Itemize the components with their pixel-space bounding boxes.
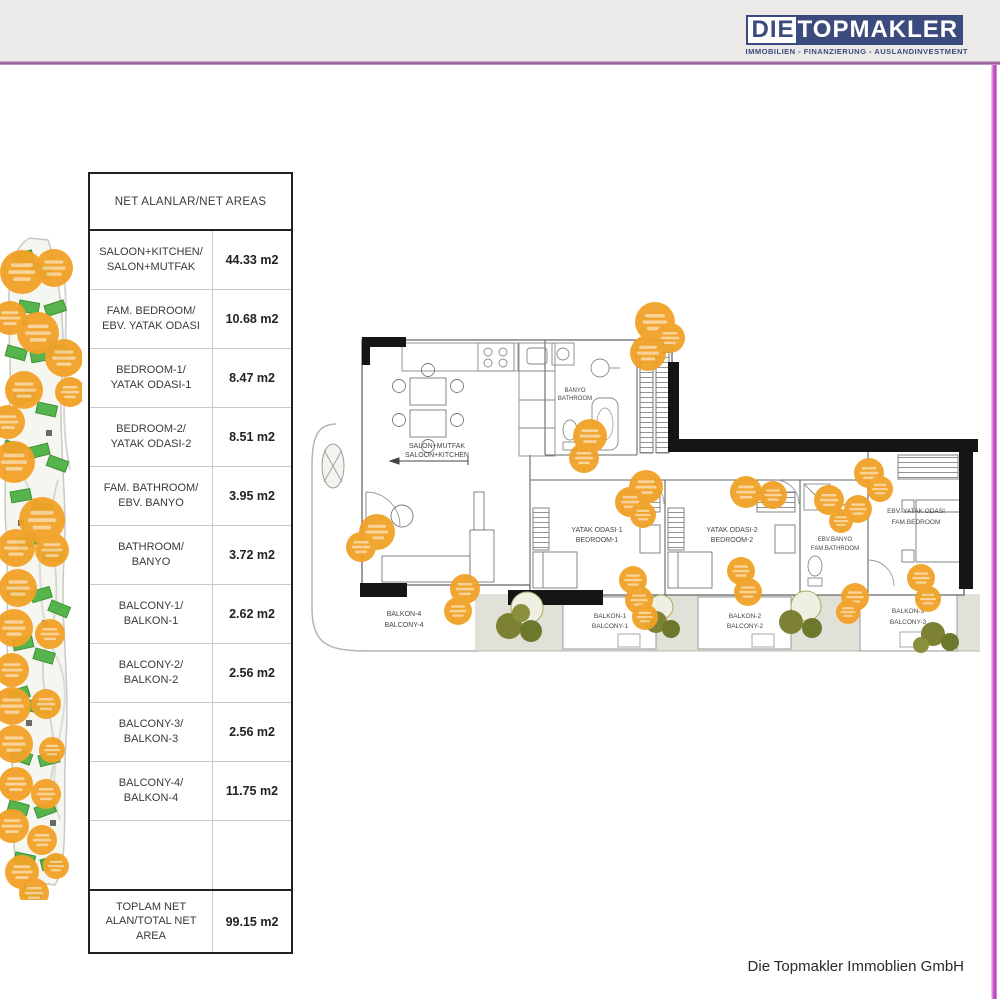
area-name-tr: BANYO bbox=[132, 555, 171, 570]
table-row: FAM. BEDROOM/ EBV. YATAK ODASI 10.68 m2 bbox=[90, 290, 291, 349]
area-name-tr: EBV. YATAK ODASI bbox=[102, 319, 200, 334]
area-name-tr: BALKON-1 bbox=[124, 614, 178, 629]
area-value: 8.47 m2 bbox=[213, 349, 291, 407]
room-label-balcony4-tr: BALKON-4 bbox=[387, 611, 422, 618]
area-name-en: BATHROOM/ bbox=[118, 540, 184, 555]
area-name-tr: BALKON-2 bbox=[124, 673, 178, 688]
brand-logo: DIE TOPMAKLER IMMOBILIEN - FINANZIERUNG … bbox=[746, 15, 968, 56]
area-value: 3.72 m2 bbox=[213, 526, 291, 584]
room-label-bedroom1-en: BEDROOM-1 bbox=[576, 537, 619, 544]
table-row: BEDROOM-1/ YATAK ODASI-1 8.47 m2 bbox=[90, 349, 291, 408]
area-name-tr: BALKON-4 bbox=[124, 791, 178, 806]
table-row: BALCONY-1/ BALKON-1 2.62 m2 bbox=[90, 585, 291, 644]
room-label-bedroom2-tr: YATAK ODASI-2 bbox=[706, 527, 757, 534]
table-row: SALOON+KITCHEN/ SALON+MUTFAK 44.33 m2 bbox=[90, 231, 291, 290]
area-name bbox=[90, 821, 213, 889]
table-row: BALCONY-2/ BALKON-2 2.56 m2 bbox=[90, 644, 291, 703]
table-row: FAM. BATHROOM/ EBV. BANYO 3.95 m2 bbox=[90, 467, 291, 526]
room-label-balcony1-tr: BALKON-1 bbox=[594, 613, 627, 620]
room-label-balcony3-tr: BALKON-3 bbox=[892, 608, 925, 615]
area-name: BATHROOM/ BANYO bbox=[90, 526, 213, 584]
site-plan-thumbnail bbox=[0, 228, 82, 900]
logo-topmakler: TOPMAKLER bbox=[796, 15, 964, 45]
logo-die: DIE bbox=[746, 15, 796, 45]
area-name-tr: SALON+MUTFAK bbox=[107, 260, 195, 275]
table-row: BEDROOM-2/ YATAK ODASI-2 8.51 m2 bbox=[90, 408, 291, 467]
total-value: 99.15 m2 bbox=[213, 891, 291, 952]
area-value: 3.95 m2 bbox=[213, 467, 291, 525]
total-label-line3: AREA bbox=[136, 929, 166, 944]
header-divider-line bbox=[0, 61, 1000, 65]
area-value: 2.56 m2 bbox=[213, 644, 291, 702]
room-label-balcony3-en: BALCONY-3 bbox=[890, 619, 927, 626]
area-name-tr: EBV. BANYO bbox=[118, 496, 184, 511]
room-label-balcony1-en: BALCONY-1 bbox=[592, 623, 629, 630]
area-name: SALOON+KITCHEN/ SALON+MUTFAK bbox=[90, 231, 213, 289]
table-row: BALCONY-3/ BALKON-3 2.56 m2 bbox=[90, 703, 291, 762]
page-right-border bbox=[991, 65, 997, 999]
area-value: 2.56 m2 bbox=[213, 703, 291, 761]
floor-plan: SALON+MUTFAK SALOON+KITCHEN BANYO BATHRO… bbox=[300, 300, 990, 660]
area-name-en: BALCONY-2/ bbox=[119, 658, 183, 673]
area-value: 2.62 m2 bbox=[213, 585, 291, 643]
total-label: TOPLAM NET ALAN/TOTAL NET AREA bbox=[90, 891, 213, 952]
area-name: FAM. BEDROOM/ EBV. YATAK ODASI bbox=[90, 290, 213, 348]
area-name: FAM. BATHROOM/ EBV. BANYO bbox=[90, 467, 213, 525]
net-areas-table: NET ALANLAR/NET AREAS SALOON+KITCHEN/ SA… bbox=[88, 172, 293, 954]
room-label-bedroom1-tr: YATAK ODASI-1 bbox=[571, 527, 622, 534]
area-name: BEDROOM-1/ YATAK ODASI-1 bbox=[90, 349, 213, 407]
logo-tagline: IMMOBILIEN - FINANZIERUNG - AUSLANDINVES… bbox=[746, 47, 968, 56]
room-label-salon-tr: SALON+MUTFAK bbox=[409, 443, 466, 450]
area-name-tr: BALKON-3 bbox=[124, 732, 178, 747]
total-label-line2: ALAN/TOTAL NET bbox=[106, 914, 197, 929]
area-name: BALCONY-1/ BALKON-1 bbox=[90, 585, 213, 643]
area-name-en: BALCONY-3/ bbox=[119, 717, 183, 732]
table-row: BATHROOM/ BANYO 3.72 m2 bbox=[90, 526, 291, 585]
total-label-line1: TOPLAM NET bbox=[116, 900, 186, 915]
area-value: 44.33 m2 bbox=[213, 231, 291, 289]
room-label-fam-bedroom-tr: EBV. YATAK ODASI bbox=[887, 508, 945, 515]
brand-logo-wordmark: DIE TOPMAKLER bbox=[746, 15, 968, 45]
area-name-tr: YATAK ODASI-1 bbox=[111, 378, 192, 393]
area-value: 8.51 m2 bbox=[213, 408, 291, 466]
area-name: BEDROOM-2/ YATAK ODASI-2 bbox=[90, 408, 213, 466]
table-total-row: TOPLAM NET ALAN/TOTAL NET AREA 99.15 m2 bbox=[90, 891, 291, 952]
room-label-balcony2-tr: BALKON-2 bbox=[729, 613, 762, 620]
room-label-balcony4-en: BALCONY-4 bbox=[384, 622, 423, 629]
area-name-en: SALOON+KITCHEN/ bbox=[99, 245, 203, 260]
area-name: BALCONY-3/ BALKON-3 bbox=[90, 703, 213, 761]
footer-company-name: Die Topmakler Immoblien GmbH bbox=[748, 958, 964, 975]
room-label-bedroom2-en: BEDROOM-2 bbox=[711, 537, 754, 544]
expose-page: DIE TOPMAKLER IMMOBILIEN - FINANZIERUNG … bbox=[0, 0, 1000, 999]
table-title: NET ALANLAR/NET AREAS bbox=[90, 174, 291, 231]
area-value bbox=[213, 821, 291, 889]
area-name-en: BEDROOM-1/ bbox=[116, 363, 186, 378]
area-value: 10.68 m2 bbox=[213, 290, 291, 348]
area-name-tr: YATAK ODASI-2 bbox=[111, 437, 192, 452]
area-name-en: BALCONY-1/ bbox=[119, 599, 183, 614]
room-label-salon-en: SALOON+KITCHEN bbox=[405, 452, 469, 459]
area-name-en: FAM. BATHROOM/ bbox=[104, 481, 199, 496]
table-row: BALCONY-4/ BALKON-4 11.75 m2 bbox=[90, 762, 291, 821]
room-label-fam-bathroom-en: FAM.BATHROOM bbox=[811, 546, 859, 552]
area-name-en: FAM. BEDROOM/ bbox=[107, 304, 196, 319]
room-label-fam-bathroom-tr: EBV.BANYO bbox=[818, 537, 852, 543]
room-label-bathroom-en: BATHROOM bbox=[558, 396, 592, 402]
room-label-fam-bedroom-en: FAM.BEDROOM bbox=[892, 519, 941, 526]
room-label-bathroom-tr: BANYO bbox=[564, 388, 585, 394]
area-name: BALCONY-2/ BALKON-2 bbox=[90, 644, 213, 702]
area-name: BALCONY-4/ BALKON-4 bbox=[90, 762, 213, 820]
area-name-en: BEDROOM-2/ bbox=[116, 422, 186, 437]
area-value: 11.75 m2 bbox=[213, 762, 291, 820]
area-name-en: BALCONY-4/ bbox=[119, 776, 183, 791]
table-row-empty bbox=[90, 821, 291, 891]
room-label-balcony2-en: BALCONY-2 bbox=[727, 623, 764, 630]
